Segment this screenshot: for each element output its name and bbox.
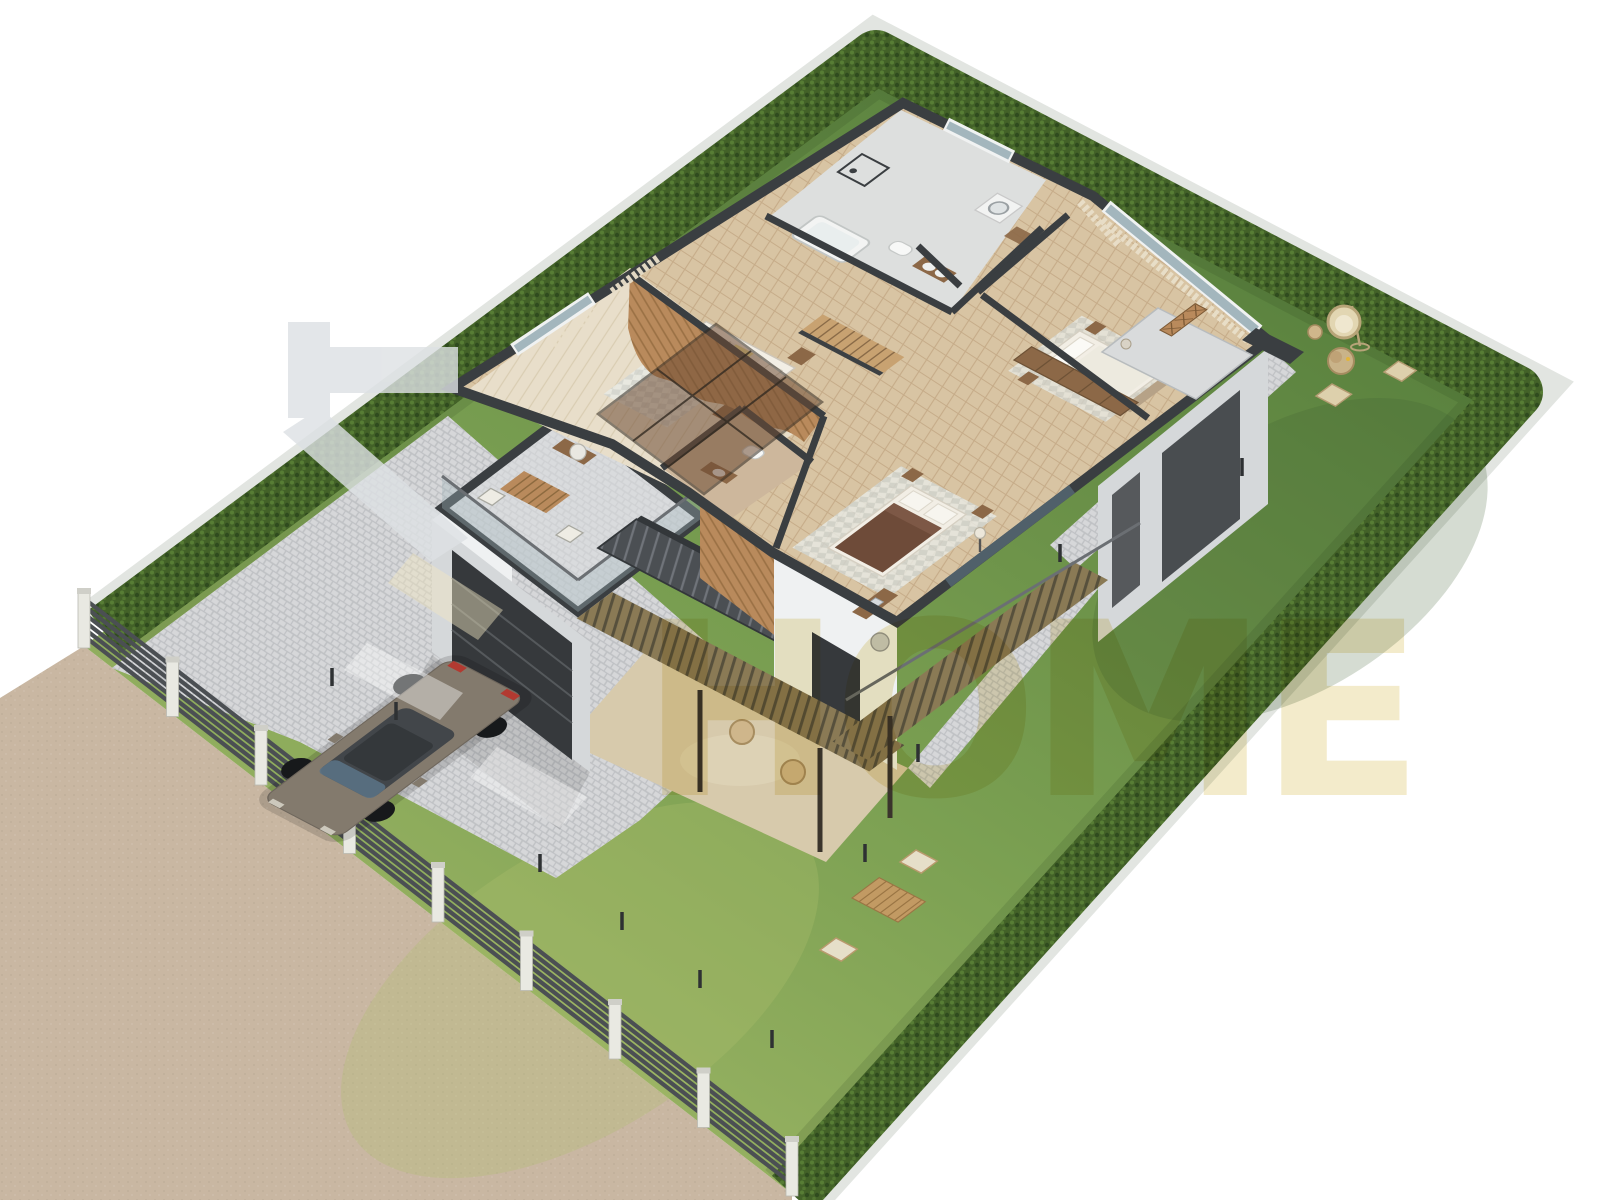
logo-bar-horizontal (330, 347, 458, 393)
desk-chair (570, 444, 586, 460)
watermark-home-text: HOME (640, 571, 1414, 853)
drum-side-table (1308, 325, 1322, 339)
concrete-post (431, 862, 445, 922)
concrete-post (166, 657, 180, 717)
isometric-house-render: HOME (0, 0, 1600, 1200)
concrete-post (608, 999, 622, 1059)
concrete-post (697, 1068, 711, 1128)
round-coffee-table (1328, 348, 1354, 374)
render-canvas: HOME (0, 0, 1600, 1200)
balcony-side-table (1121, 339, 1131, 349)
concrete-post (785, 1136, 799, 1196)
concrete-post (520, 931, 534, 991)
sun-hat (1330, 351, 1342, 363)
concrete-post (77, 588, 91, 648)
logo-bar-vertical (288, 322, 330, 418)
concrete-post (254, 725, 268, 785)
